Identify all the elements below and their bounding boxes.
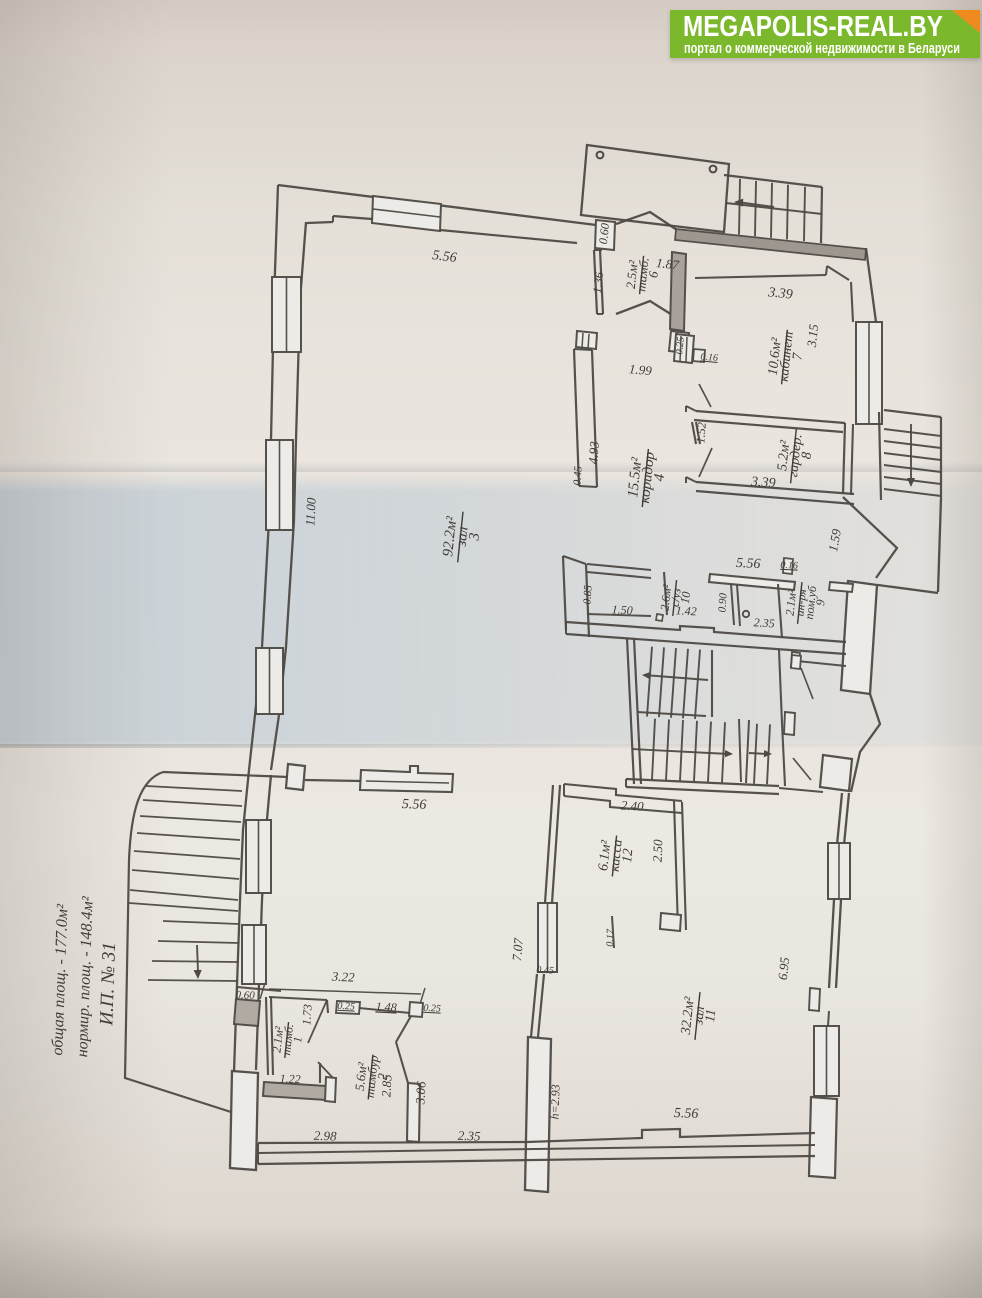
svg-text:5.56: 5.56: [402, 797, 427, 813]
svg-text:1.52: 1.52: [693, 422, 708, 444]
svg-text:11: 11: [703, 1008, 719, 1022]
svg-text:0.16: 0.16: [700, 351, 718, 363]
svg-text:2.98: 2.98: [314, 1128, 338, 1144]
svg-text:тамб.: тамб.: [279, 1023, 296, 1056]
svg-text:0.60: 0.60: [235, 989, 255, 1002]
svg-text:2.1м²: 2.1м²: [269, 1025, 286, 1053]
svg-text:0.25: 0.25: [337, 1001, 355, 1013]
svg-text:7: 7: [790, 351, 806, 361]
svg-text:1.48: 1.48: [375, 999, 397, 1014]
svg-text:2.40: 2.40: [620, 798, 644, 814]
svg-text:зал: зал: [691, 1006, 708, 1027]
svg-text:3.06: 3.06: [412, 1081, 428, 1106]
svg-text:h=2.93: h=2.93: [547, 1084, 562, 1120]
svg-text:5.56: 5.56: [431, 248, 457, 266]
svg-text:5.56: 5.56: [674, 1106, 699, 1122]
svg-text:2: 2: [374, 1072, 390, 1081]
svg-text:32.2м²: 32.2м²: [679, 995, 698, 1036]
svg-text:7.07: 7.07: [509, 937, 526, 961]
svg-text:6.1м²: 6.1м²: [596, 839, 614, 872]
svg-text:5.6м²: 5.6м²: [352, 1061, 370, 1092]
svg-text:3.39: 3.39: [766, 285, 793, 303]
svg-text:1.36: 1.36: [590, 271, 606, 293]
svg-text:6: 6: [645, 270, 661, 279]
svg-text:0.25: 0.25: [423, 1003, 441, 1015]
svg-text:0.60: 0.60: [596, 222, 612, 244]
svg-text:3.22: 3.22: [330, 969, 355, 985]
svg-text:8: 8: [799, 451, 815, 460]
svg-text:1: 1: [290, 1036, 305, 1043]
svg-text:2.50: 2.50: [650, 839, 666, 863]
svg-text:6.95: 6.95: [775, 956, 792, 981]
svg-text:0.25: 0.25: [674, 336, 687, 355]
svg-text:0.45: 0.45: [536, 965, 554, 977]
svg-text:2.85: 2.85: [378, 1074, 394, 1098]
svg-text:4.93: 4.93: [585, 440, 602, 464]
svg-text:кабинет: кабинет: [777, 331, 797, 383]
svg-text:2.5м²: 2.5м²: [623, 259, 641, 290]
svg-text:1.87: 1.87: [655, 255, 680, 272]
svg-text:2.35: 2.35: [458, 1128, 482, 1144]
svg-text:12: 12: [620, 848, 636, 863]
svg-text:касса: касса: [608, 839, 626, 873]
svg-text:тамбур: тамбур: [362, 1054, 381, 1099]
svg-text:1.73: 1.73: [299, 1004, 314, 1026]
svg-text:0.17: 0.17: [605, 928, 617, 947]
svg-text:10.6м²: 10.6м²: [766, 336, 785, 376]
svg-text:3.15: 3.15: [804, 323, 821, 349]
svg-text:тамб.: тамб.: [633, 257, 651, 293]
svg-text:1.99: 1.99: [628, 361, 652, 378]
svg-text:1.22: 1.22: [279, 1071, 300, 1086]
